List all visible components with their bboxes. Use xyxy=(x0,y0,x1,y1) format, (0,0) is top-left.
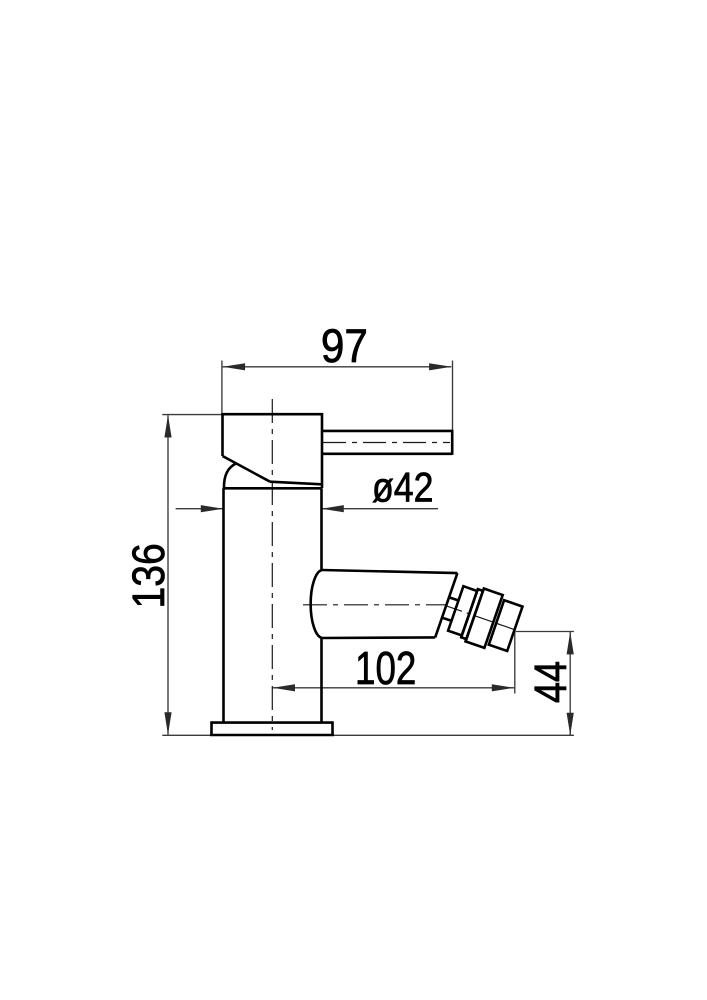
svg-text:102: 102 xyxy=(355,642,416,694)
svg-text:44: 44 xyxy=(525,661,576,703)
svg-text:ø42: ø42 xyxy=(372,465,434,511)
svg-text:97: 97 xyxy=(321,321,368,373)
svg-text:136: 136 xyxy=(123,543,173,608)
